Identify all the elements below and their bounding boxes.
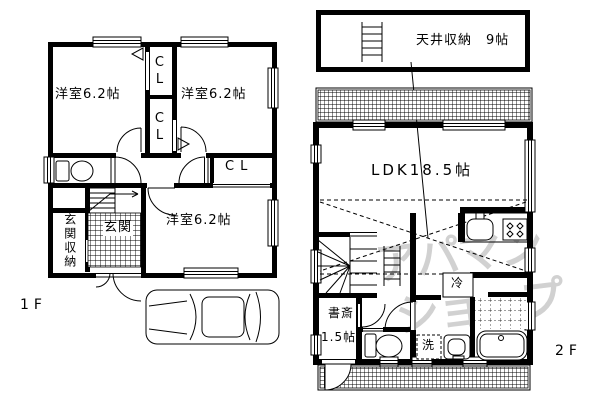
balcony-top — [316, 88, 532, 122]
label-bedroom-s: 洋室6.2帖 — [166, 214, 232, 229]
label-washer: 洗 — [422, 339, 435, 353]
stove-icon — [503, 219, 527, 240]
label-study-name: 書斎 — [328, 307, 354, 321]
label-fridge: 冷 — [451, 277, 464, 291]
label-entrance-storage: 玄関収納 — [62, 213, 76, 269]
label-attic: 天井収納 9帖 — [416, 34, 509, 49]
label-study-size: 1.5帖 — [321, 331, 356, 345]
label-entrance: 玄関 — [103, 221, 133, 236]
label-closet-mid: CL — [151, 111, 166, 145]
faucet-icon — [476, 213, 484, 219]
bathtub-icon — [477, 331, 527, 360]
label-ldk: LDK18.5帖 — [371, 162, 473, 179]
bathroom-floor-grid — [475, 297, 527, 329]
floor-plan-canvas: アパマン ショップ — [0, 0, 600, 400]
label-floor-2f: 2F — [555, 343, 582, 359]
vanity-sink-icon — [444, 335, 470, 359]
staircase-2f — [318, 237, 377, 293]
label-bedroom-ne: 洋室6.2帖 — [181, 88, 247, 103]
car-icon — [146, 290, 279, 344]
label-closet-top: CL — [151, 55, 166, 89]
toilet-icon-1f — [56, 161, 93, 181]
attic-access-ladder-icon — [384, 246, 400, 286]
kitchen-counter — [463, 213, 528, 242]
staircase-1f — [87, 188, 138, 213]
toilet-icon-2f — [365, 334, 402, 357]
doors-2f — [362, 299, 489, 330]
label-closet-hall: CL — [225, 160, 253, 175]
kitchen-sink-icon — [467, 219, 493, 240]
label-bedroom-nw: 洋室6.2帖 — [55, 88, 121, 103]
label-floor-1f: 1F — [20, 297, 47, 313]
floor-plan-drawing — [0, 0, 600, 400]
attic-ladder-icon — [362, 22, 382, 62]
